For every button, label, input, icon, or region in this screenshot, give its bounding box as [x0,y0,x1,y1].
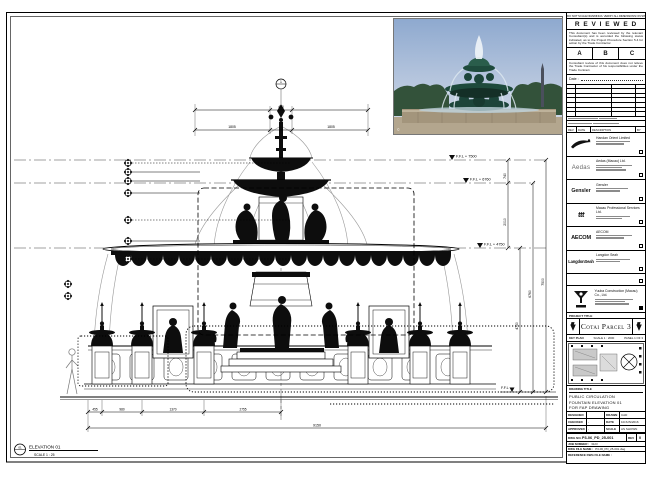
description-col-label: DESCRIPTION [591,127,636,132]
aedas-logo: Aedas [568,158,594,179]
date-line [581,78,643,81]
contractor-checkbox [639,306,643,310]
key-plan-map [567,342,645,386]
project-title: Cotai Parcel 3 [580,322,632,331]
consultant-name: AECOM [596,230,644,234]
dim-4750: 4750 [515,322,519,330]
consultant-box-langdon-seah: LangdonSeah Langdon Seah [567,251,645,275]
langdon-seah-logo: LangdonSeah [568,252,594,273]
reviewed-date-row: Date : [567,74,645,84]
drawn-label: DRAWN [605,412,620,419]
project-title-band: Cotai Parcel 3 [567,319,645,335]
status-option-c: C [619,48,645,59]
dim-bottom: 980 [119,408,125,412]
dwg-no-label: DWG NO. [567,436,582,440]
dwg-no-value: P3-06_PD_25-001 [582,436,626,440]
consultant-box-aedas: Aedas Aedas (Macau) Ltd. [567,157,645,181]
dim-bottom: 2755 [239,408,246,412]
date-label: Date : [569,77,579,81]
consultant-box-empty [567,274,645,286]
dim-bottom: 1370 [169,408,176,412]
consultant-box-handan: Handan Orient Limited [567,133,645,157]
level-label: F.F.L + 6760 [470,178,491,182]
drawing-title-block: DRAWING TITLE PUBLIC CIRCULATION FOUNTAI… [567,386,645,412]
status-checkbox [639,197,643,201]
dim-overall: 9150 [313,424,321,428]
rev-col-label: REV [567,127,577,132]
consultant-box-mps: ttt Macau Professional Services Ltd. [567,204,645,228]
drawing-title-label: DRAWING TITLE [569,387,643,393]
view-title: 01 ELEVATION 01 SCALE 1 : 25 [15,444,99,457]
consultant-name: Macau Professional Services Ltd. [596,206,644,214]
dim-7500: 7500 [541,278,545,286]
signature-fields: DESIGNED DRAWN CAD CHECKED - DATE 10/JUN… [567,412,645,434]
key-plan-panel: PANEL 1 OF 3 [624,335,643,341]
fountain-photo: © [393,18,563,135]
consultant-box-aecom: AECOM AECOM [567,227,645,251]
dim-bottom: 455 [92,408,98,412]
consultant-name: Langdon Seah [596,253,644,257]
fountain-photo-image [394,19,563,135]
handan-logo-icon [568,134,594,155]
reviewed-stamp: R E V I E W E D This document has been r… [567,19,645,127]
date-field-value: 10/JUN/2016 [620,419,645,426]
by-col-label: BY [636,127,645,132]
job-number-value: 3123 [591,442,597,446]
scale-field-value: AS SHOWN [620,426,645,433]
ornament-icon [567,319,580,334]
status-option-a: A [567,48,593,59]
ornament-icon [632,319,645,334]
approved-label: APPROVED [567,426,587,433]
ffl-label: F.F.L [501,386,509,390]
drawn-value: CAD [620,412,645,419]
revision-footer-row [567,121,645,126]
status-checkbox [639,279,643,283]
designed-label: DESIGNED [567,412,587,419]
view-scale-label: SCALE 1 : 25 [34,453,55,457]
checked-label: CHECKED [567,419,587,426]
status-checkbox [639,267,643,271]
status-checkbox [639,220,643,224]
key-plan-label: KEY PLAN [569,335,584,341]
consultant-name: Handan Orient Limited [596,136,644,140]
reviewed-status-options: A B C [567,47,645,60]
contractor-name: Yuuba Construction (Macau) Co., Ltd. [595,289,644,297]
designed-value [587,412,605,419]
contractor-logo-icon [569,288,593,311]
file-name-label: DWG FILE NAME : [568,447,593,451]
key-plan-header: KEY PLAN SCALE 1 : 2000 PANEL 1 OF 3 [567,335,645,342]
scale-field-label: SCALE [605,426,620,433]
rev-label: REV [626,434,636,442]
reviewed-title: R E V I E W E D [567,19,645,30]
status-option-b: B [593,48,619,59]
reviewed-paragraph-2: Consultant review of this document does … [567,60,645,74]
consultant-name: Aedas (Macau) Ltd. [596,159,644,163]
status-checkbox [639,150,643,154]
mps-logo: ttt [568,205,594,226]
rev-value: 0 [636,434,645,442]
date-field-label: DATE [605,419,620,426]
view-title-label: ELEVATION 01 [29,445,61,450]
dim-6760: 6760 [528,290,532,298]
checked-value: - [587,419,605,426]
view-bubble-number: 01 [18,446,22,450]
drawing-title-line: FOR FAP DRAWING [569,405,643,411]
revision-table [567,84,645,126]
consultant-name: Gensler [596,183,644,187]
dim-740: 740 [503,173,507,179]
reference-file-row: REFERENCE DWG FILE NAME : [567,452,645,457]
dwg-number-row: DWG NO. P3-06_PD_25-001 REV 0 [567,434,645,442]
level-label: F.F.L + 7500 [456,155,477,159]
photo-caption: © [397,128,400,132]
dim-2010: 2010 [503,218,507,226]
title-block-panel: DO NOT SCALE DRAWINGS. VERIFY ALL DIMENS… [566,12,646,464]
dim-top-center: 450 [278,105,284,109]
job-number-label: JOB NUMBER : [568,442,589,446]
drawing-sheet: 1 [0,0,650,488]
date-col-label: DATE [577,127,591,132]
key-plan-scale: SCALE 1 : 2000 [594,335,615,341]
consultant-box-gensler: Gensler Gensler [567,180,645,204]
gensler-logo: Gensler [568,181,594,202]
status-checkbox [639,173,643,177]
grid-bubble-label: 1 [280,80,282,84]
file-name-value: P3-06_PD_25-001.dwg [595,447,625,451]
aecom-logo: AECOM [568,228,594,249]
dim-top-right: 1805 [327,125,335,129]
level-label: F.F.L + 4750 [484,243,505,247]
approved-value: - [587,426,605,433]
reference-file-label: REFERENCE DWG FILE NAME : [568,453,612,457]
scale-figure [66,349,78,394]
right-dimensions: 740 2010 4750 6760 7500 F.F.L [500,158,556,394]
contractor-box: Yuuba Construction (Macau) Co., Ltd. [567,286,645,313]
dim-top-left: 1805 [228,125,236,129]
fountain-structure [103,104,459,372]
reviewed-paragraph-1: This document has been reviewed by the r… [567,30,645,47]
bottom-dimensions: 455 980 1370 2755 9150 [86,396,548,432]
level-labels: F.F.L + 7500 F.F.L + 6760 F.F.L + 4750 [449,155,505,249]
status-checkbox [639,244,643,248]
